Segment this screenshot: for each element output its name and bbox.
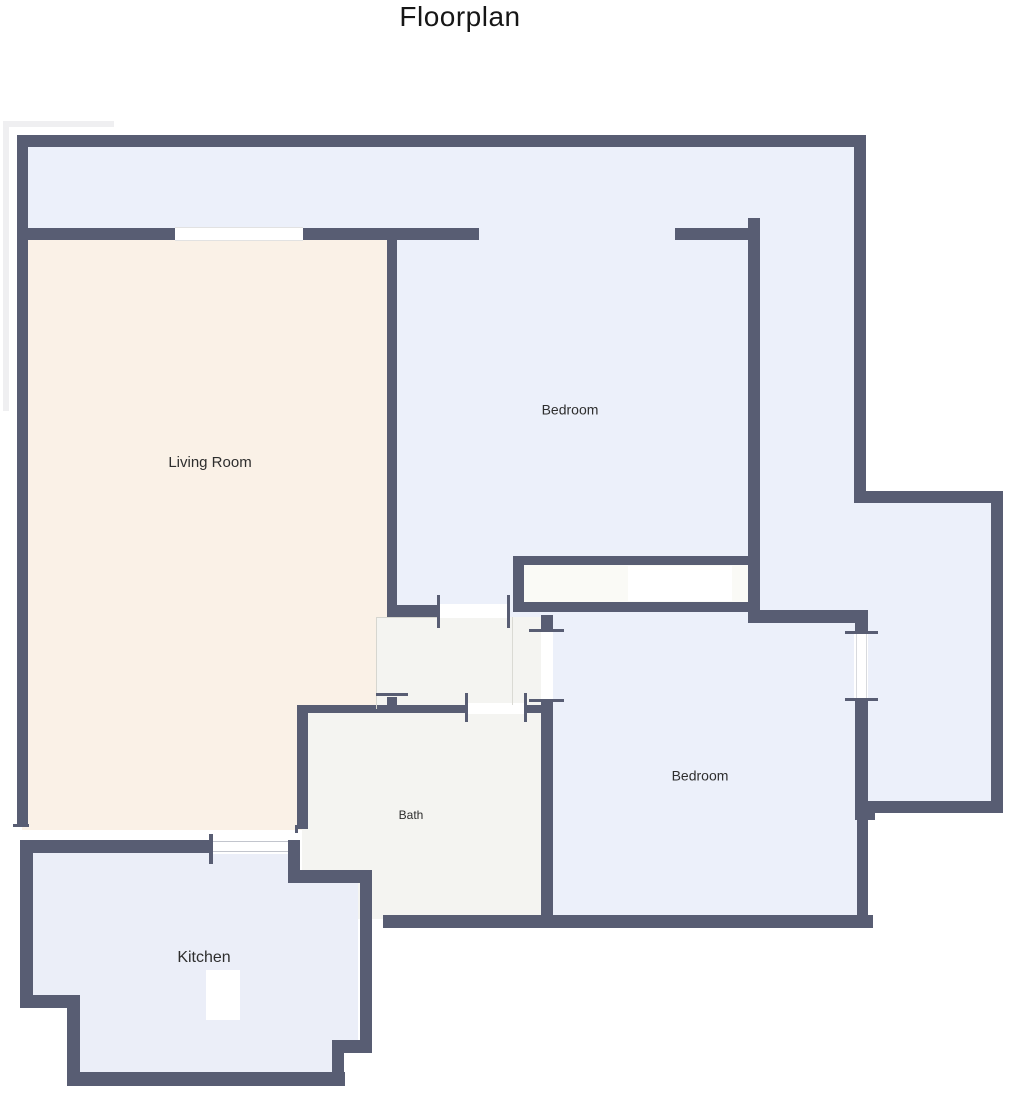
ghost-outline [3,121,114,127]
door-jamb-tick [529,699,564,702]
door-jamb-tick [13,824,29,827]
closet-shelf [628,566,732,601]
thin-line [212,841,288,842]
wall-segment [297,705,308,829]
wall-segment [67,995,80,1086]
wall-segment [858,801,1003,813]
wall-segment [855,808,875,820]
bedroom-top-label: Bedroom [542,402,599,418]
wall-segment [288,870,370,883]
thin-line [175,240,303,241]
door-jamb-tick [209,834,213,864]
wall-segment [855,700,868,812]
wall-segment [20,840,33,1008]
wall-segment [20,840,212,853]
kitchen-label: Kitchen [177,949,230,966]
thin-line [376,617,440,618]
door-jamb-tick [845,631,878,634]
floorplan-drawing: Living RoomBedroomBedroomBathKitchen [0,0,1010,1096]
wall-segment [17,135,866,147]
kitchen-island [206,970,240,1020]
annex-room [858,497,998,807]
wall-segment [541,702,553,928]
wall-segment [675,228,748,240]
ghost-outline [3,121,9,411]
thin-line [856,634,857,699]
wall-segment [387,228,397,617]
living-room-window [175,227,303,241]
bath-door [467,703,525,714]
door-jamb-tick [524,693,527,722]
wall-segment [513,602,758,612]
wall-segment [297,705,467,713]
wall-segment [390,605,438,617]
wall-segment [513,556,758,565]
wall-segment [17,228,175,240]
living-room-label: Living Room [168,454,251,471]
floorplan-page: Living RoomBedroomBedroomBathKitchen Flo… [0,0,1010,1096]
wall-segment [857,820,868,920]
wall-segment [67,1072,345,1086]
page-title: Floorplan [0,1,920,33]
door-jamb-tick [376,693,408,696]
door-jamb-tick [507,595,510,628]
thin-line [175,227,303,228]
wall-segment [860,491,1003,503]
hall-door [440,604,508,618]
door-jamb-tick [465,693,468,722]
bedroom-bottom-label: Bedroom [672,768,729,784]
wall-segment [854,135,866,503]
door-jamb-tick [529,629,564,632]
door-jamb-tick [437,595,440,628]
wall-segment [527,705,553,713]
thin-line [866,634,867,699]
wall-segment [360,870,372,1048]
thin-line [212,851,288,852]
wall-segment [748,610,868,623]
wall-segment [991,491,1003,813]
bedroom2-door [541,631,553,701]
wall-segment [383,915,873,928]
door-jamb-tick [295,825,298,833]
door-jamb-tick [845,698,878,701]
bath-label: Bath [399,808,424,822]
thin-line [512,617,513,705]
wall-segment [541,615,553,631]
